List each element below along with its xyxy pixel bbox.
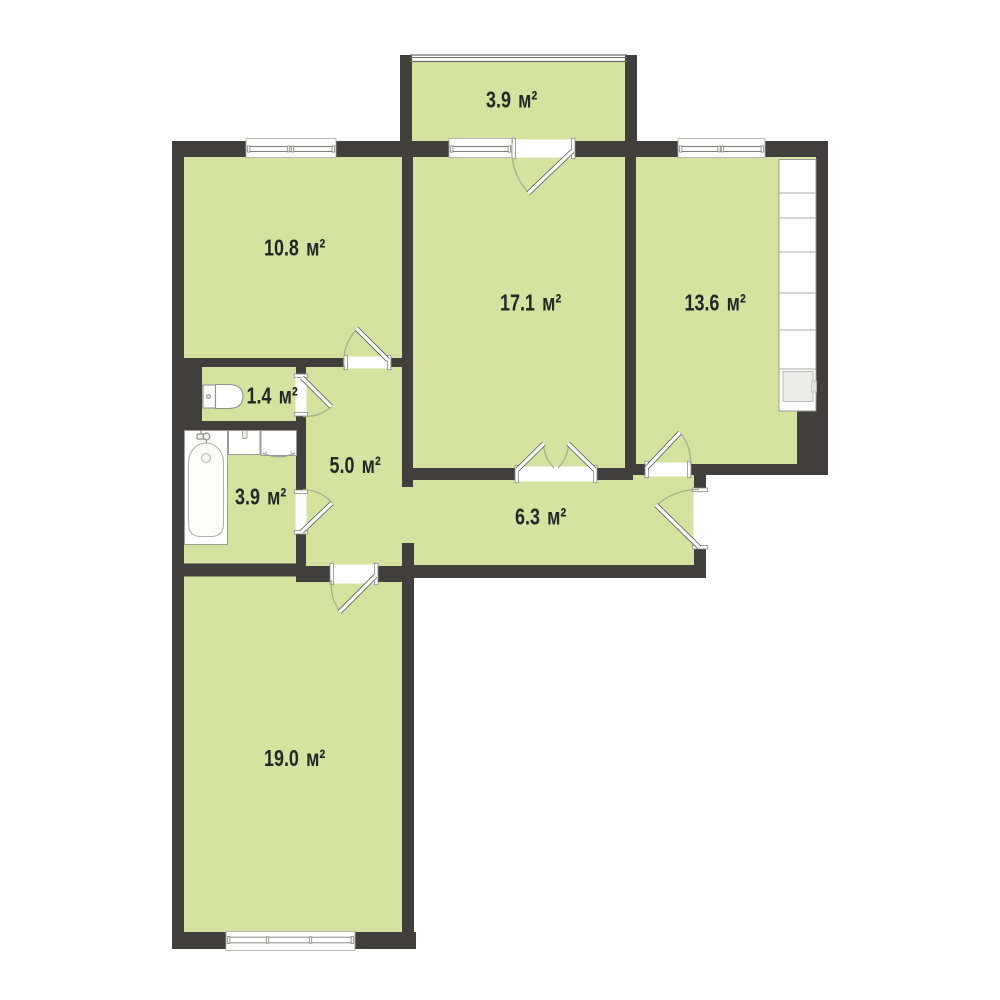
svg-text:10.8 м²: 10.8 м²: [264, 235, 325, 261]
svg-text:6.3 м²: 6.3 м²: [515, 504, 566, 530]
svg-text:5.0 м²: 5.0 м²: [330, 453, 381, 479]
svg-text:1.4 м²: 1.4 м²: [247, 383, 298, 409]
svg-text:3.9 м²: 3.9 м²: [235, 484, 286, 510]
svg-text:17.1 м²: 17.1 м²: [500, 290, 561, 316]
svg-text:13.6 м²: 13.6 м²: [685, 290, 746, 316]
svg-text:19.0 м²: 19.0 м²: [264, 746, 325, 772]
svg-text:3.9 м²: 3.9 м²: [486, 87, 537, 113]
